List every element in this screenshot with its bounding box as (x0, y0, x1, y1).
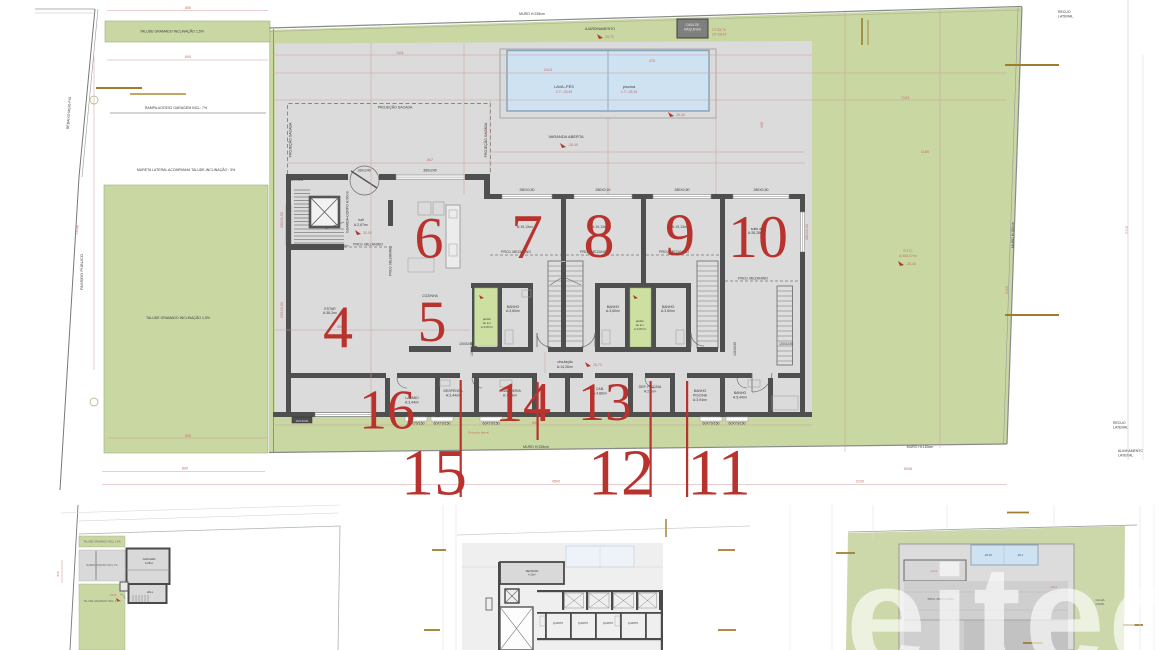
svg-text:14: 14 (495, 372, 551, 434)
svg-text:QUARTO: QUARTO (628, 622, 638, 625)
svg-text:5936: 5936 (904, 467, 912, 471)
svg-text:MÁQUINAS: MÁQUINAS (684, 28, 701, 32)
svg-text:475: 475 (649, 59, 655, 63)
svg-text:CT:28,70: CT:28,70 (712, 28, 726, 32)
svg-text:100X245: 100X245 (459, 342, 473, 346)
svg-text:A:3,44m²: A:3,44m² (446, 394, 461, 398)
svg-text:11: 11 (687, 437, 751, 510)
svg-text:ALINHAMENTO: ALINHAMENTO (1118, 449, 1143, 453)
svg-text:100X245: 100X245 (779, 342, 793, 346)
svg-text:GUARDA-CORPO H:90cm: GUARDA-CORPO H:90cm (346, 191, 350, 233)
svg-text:Proteção lateral: Proteção lateral (468, 431, 489, 435)
svg-text:30,05: 30,05 (363, 231, 372, 235)
svg-text:28,45: 28,45 (676, 113, 685, 117)
svg-text:15: 15 (401, 437, 467, 510)
svg-text:280X0,50: 280X0,50 (675, 188, 690, 192)
svg-text:PASSEIO PÚBLICO: PASSEIO PÚBLICO (79, 254, 84, 290)
svg-text:TALUDE GRAMADO INCLINAÇÃO 1,5%: TALUDE GRAMADO INCLINAÇÃO 1,5% (146, 315, 210, 320)
svg-text:5: 5 (418, 289, 447, 354)
svg-text:LATERAL: LATERAL (1118, 454, 1133, 458)
svg-text:RAMPA ACESSO GARAGEM INCL: 7%: RAMPA ACESSO GARAGEM INCL: 7% (145, 106, 207, 110)
svg-text:-28,45: -28,45 (568, 143, 578, 147)
svg-text:-28,45: -28,45 (906, 262, 916, 266)
svg-text:400: 400 (760, 122, 764, 128)
svg-text:A:5,44m²: A:5,44m² (733, 396, 748, 400)
svg-text:350x240: 350x240 (423, 169, 436, 173)
svg-text:C.F:-28,49: C.F:-28,49 (556, 90, 573, 94)
svg-text:1111: 1111 (396, 51, 404, 55)
svg-text:BANHO: BANHO (734, 391, 747, 395)
svg-text:A:3,60m²: A:3,60m² (506, 309, 521, 313)
svg-text:2413: 2413 (544, 68, 552, 72)
svg-text:280X0,50: 280X0,50 (520, 188, 535, 192)
svg-text:830: 830 (185, 434, 191, 438)
svg-text:18 PL 28 M: 18 PL 28 M (291, 179, 303, 182)
svg-text:piscina: piscina (623, 84, 636, 89)
svg-text:7103: 7103 (901, 96, 909, 100)
svg-text:290X0,50: 290X0,50 (280, 302, 284, 318)
svg-text:A:28m²: A:28m² (145, 561, 153, 565)
svg-text:MURO H:235cm: MURO H:235cm (523, 445, 549, 449)
svg-text:A:3,60m²: A:3,60m² (661, 309, 676, 313)
svg-text:VARANDA ABERTA: VARANDA ABERTA (548, 134, 584, 139)
svg-text:28,70: 28,70 (605, 35, 614, 39)
svg-text:CF:28,45: CF:28,45 (712, 33, 726, 37)
svg-text:4: 4 (323, 294, 353, 360)
svg-text:13: 13 (578, 372, 632, 432)
svg-text:A:12m²: A:12m² (528, 574, 536, 577)
svg-text:280X0,50: 280X0,50 (754, 188, 769, 192)
svg-text:PISCINA: PISCINA (693, 394, 708, 398)
svg-text:A:2,87m²: A:2,87m² (634, 327, 646, 331)
svg-text:4500: 4500 (552, 480, 560, 484)
svg-text:9: 9 (665, 202, 695, 268)
svg-text:PROJ. MEZANINO: PROJ. MEZANINO (389, 246, 393, 276)
svg-text:GARAGEM: GARAGEM (143, 558, 156, 561)
svg-text:12: 12 (588, 437, 654, 510)
svg-text:S.T.D.: S.T.D. (903, 249, 913, 253)
svg-text:400: 400 (484, 127, 488, 133)
svg-text:QUARTO: QUARTO (553, 622, 563, 625)
svg-text:A:3,60m²: A:3,60m² (606, 309, 621, 313)
svg-text:LATERAL: LATERAL (1058, 15, 1073, 19)
svg-text:847: 847 (427, 158, 433, 162)
svg-text:hall: hall (358, 218, 364, 222)
svg-text:PROJ. MEZANINO: PROJ. MEZANINO (353, 243, 383, 247)
svg-text:800: 800 (182, 467, 188, 471)
svg-text:CASA DE: CASA DE (686, 23, 700, 27)
svg-text:RECUO: RECUO (1113, 421, 1126, 425)
svg-text:A:3,94m²: A:3,94m² (693, 398, 708, 402)
svg-text:280X0,50: 280X0,50 (805, 224, 809, 240)
svg-text:RECUO: RECUO (1058, 10, 1071, 14)
svg-text:16: 16 (359, 380, 415, 442)
svg-text:QUARTO: QUARTO (603, 622, 613, 625)
svg-text:7: 7 (511, 201, 543, 272)
svg-text:BANHO: BANHO (694, 389, 707, 393)
svg-text:TALUDE GRAMADO INCL 1,5%: TALUDE GRAMADO INCL 1,5% (83, 540, 121, 544)
svg-text:MOCIDOR: MOCIDOR (296, 419, 309, 423)
svg-text:830: 830 (56, 571, 60, 576)
svg-text:A:2,67m²: A:2,67m² (354, 223, 369, 227)
svg-text:A:14,26m²: A:14,26m² (557, 365, 574, 369)
svg-text:HALL: HALL (147, 590, 154, 594)
svg-text:A:465,07m²: A:465,07m² (899, 254, 918, 258)
svg-text:2110: 2110 (1125, 226, 1129, 234)
svg-text:A:2,87m²: A:2,87m² (481, 325, 493, 329)
svg-text:PROJEÇÃO SACADA: PROJEÇÃO SACADA (288, 122, 293, 157)
svg-text:AJARDINAMENTO: AJARDINAMENTO (585, 27, 615, 31)
svg-text:MURO H:235cm: MURO H:235cm (519, 12, 545, 16)
svg-text:QUARTO: QUARTO (578, 622, 588, 625)
svg-text:28,70: 28,70 (593, 363, 602, 367)
svg-text:PROJ. MEZANINO: PROJ. MEZANINO (738, 277, 768, 281)
svg-text:10: 10 (728, 204, 788, 270)
svg-text:290X0,50: 290X0,50 (280, 212, 284, 228)
svg-text:RAMPA ACESSO INCL 7%: RAMPA ACESSO INCL 7% (86, 563, 118, 567)
svg-text:100X245: 100X245 (733, 342, 737, 356)
svg-text:800: 800 (185, 55, 191, 59)
svg-text:TALUDE GRAMADO INCL 1,5%: TALUDE GRAMADO INCL 1,5% (83, 599, 121, 603)
svg-text:MURO H:180cm: MURO H:180cm (1011, 222, 1015, 248)
svg-text:MURO Ht:180cm: MURO Ht:180cm (907, 445, 934, 449)
svg-text:LATERAL: LATERAL (1113, 426, 1128, 430)
svg-text:eitec: eitec (846, 536, 1170, 650)
svg-text:circulação: circulação (557, 360, 573, 364)
svg-text:2100: 2100 (856, 480, 864, 484)
svg-text:800: 800 (185, 6, 191, 10)
svg-text:2110: 2110 (1005, 286, 1009, 294)
svg-text:6: 6 (415, 206, 444, 271)
svg-text:1180: 1180 (921, 150, 929, 154)
svg-text:280X0,50: 280X0,50 (596, 188, 611, 192)
svg-text:C.F:-28,45: C.F:-28,45 (621, 90, 638, 94)
svg-text:LAVA–PÉS: LAVA–PÉS (554, 84, 574, 89)
svg-text:29,35: 29,35 (110, 593, 117, 597)
svg-text:160x240: 160x240 (357, 169, 370, 173)
svg-text:8: 8 (584, 203, 615, 271)
svg-text:TALUDE GRAMADO INCLINAÇÃO 1,5%: TALUDE GRAMADO INCLINAÇÃO 1,5% (140, 29, 204, 34)
svg-text:MURETA LATERAL ACOMPANHA TALUD: MURETA LATERAL ACOMPANHA TALUDE-INCLINAÇ… (137, 167, 235, 172)
svg-text:PROJEÇÃO SACADA: PROJEÇÃO SACADA (378, 105, 413, 110)
